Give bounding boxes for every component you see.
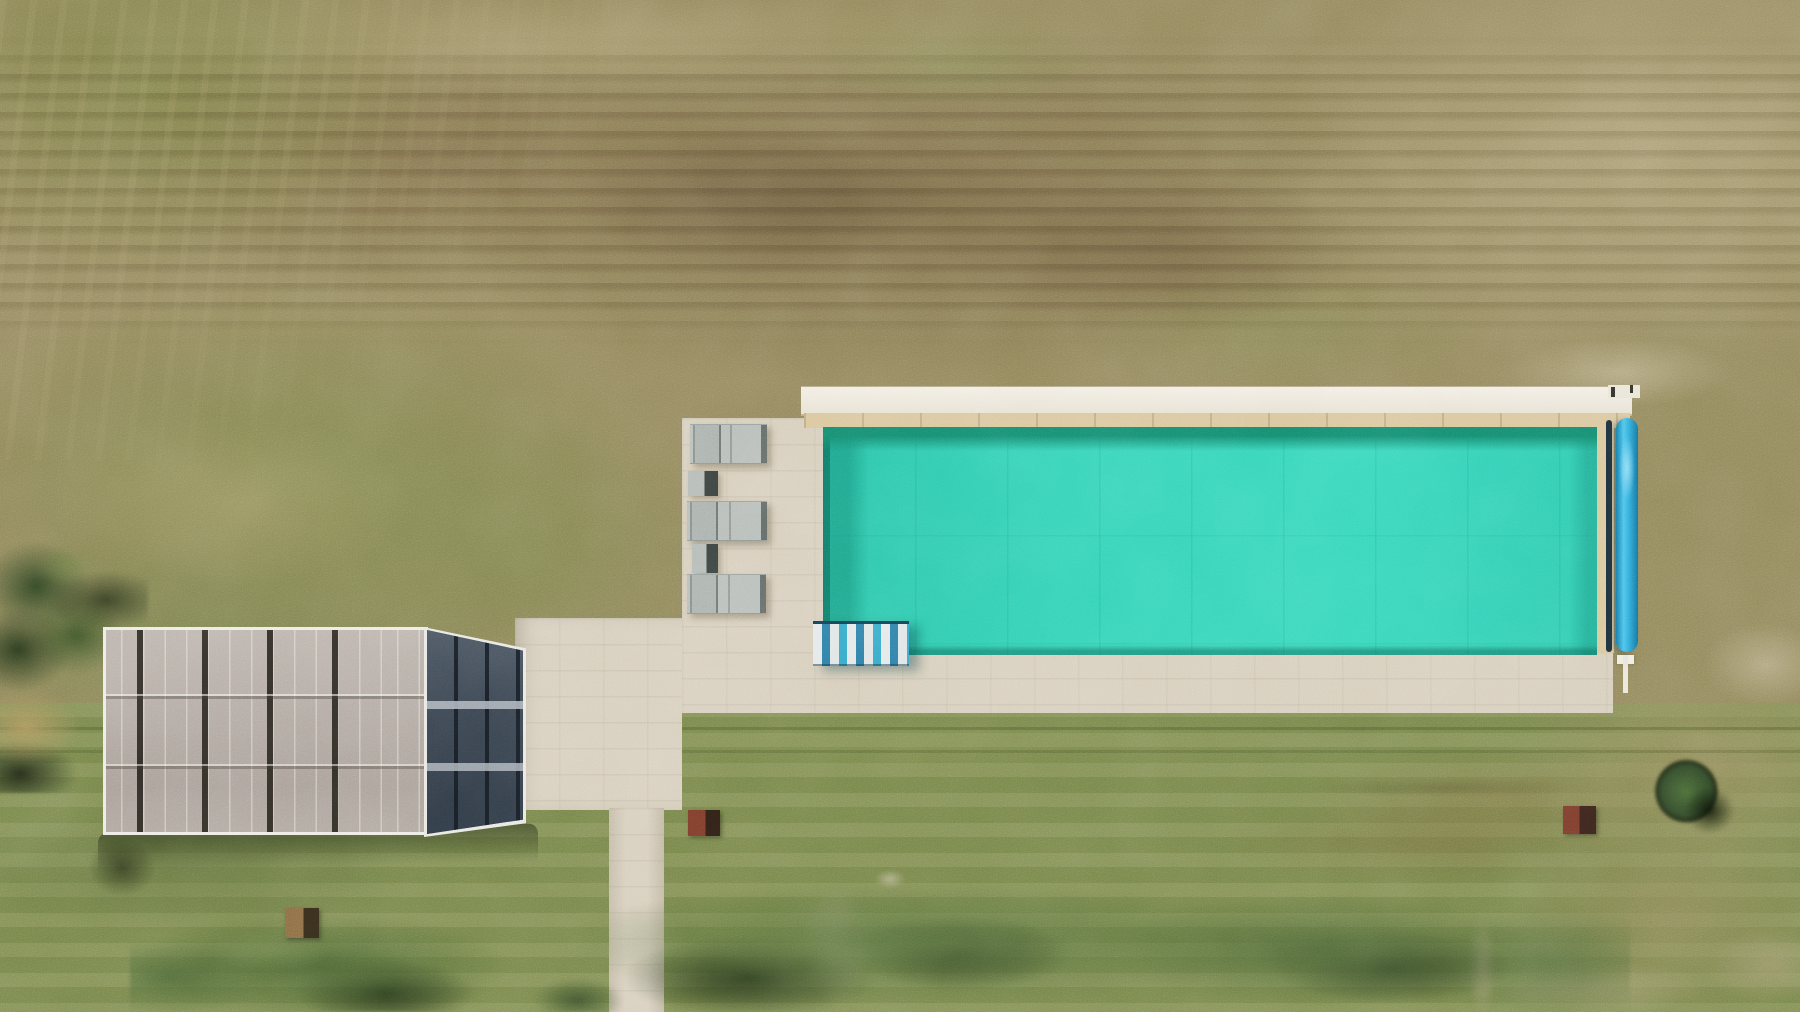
hedge-row (130, 855, 1630, 1012)
pool-steps (813, 621, 909, 666)
lounger-seam (729, 502, 731, 540)
side-table (688, 471, 718, 496)
side-table (692, 544, 718, 573)
sun-lounger (690, 424, 767, 464)
pool-house-glass-section (427, 628, 523, 834)
lounger-backrest (690, 575, 718, 613)
patio (515, 618, 682, 810)
sun-lounger (687, 501, 767, 541)
round-bush (1645, 750, 1737, 848)
sand-strip-top (804, 413, 1630, 428)
roller-mount-stem (1623, 655, 1628, 693)
planter (688, 810, 720, 836)
pool-house-roof (103, 627, 428, 835)
lounger-end (761, 425, 767, 463)
pool-water (823, 427, 1597, 655)
roller-mount-top (1608, 385, 1640, 398)
lounger-backrest (693, 425, 721, 463)
aerial-photo (0, 0, 1800, 1012)
lounger-backrest (690, 502, 718, 540)
dry-grass-streaks (0, 0, 620, 460)
lounger-seam (730, 425, 732, 463)
pool-coping (801, 386, 1632, 416)
planter (1563, 806, 1596, 834)
lounger-end (760, 575, 766, 613)
pool-cover-roller (1616, 418, 1638, 652)
sun-lounger (687, 574, 766, 614)
planter (285, 908, 319, 938)
lounger-end (761, 502, 767, 540)
lounger-seam (728, 575, 730, 613)
pool-edge-rail (1606, 420, 1612, 652)
